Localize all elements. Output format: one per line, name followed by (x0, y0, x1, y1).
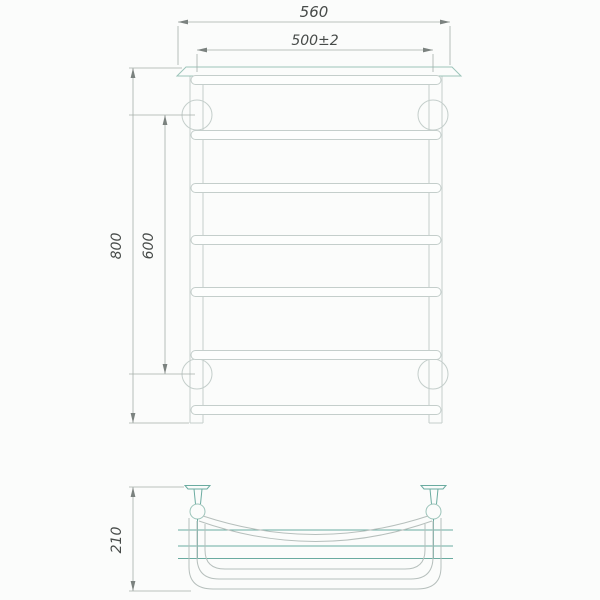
rail-bar-5 (191, 288, 441, 297)
rail-bar-4 (191, 236, 441, 245)
mount-collar-top-right (418, 100, 448, 130)
dim-label-bracket-spacing: 600 (141, 233, 157, 260)
dim-label-rail-width: 500±2 (291, 33, 338, 49)
dim-500-lines (197, 50, 433, 72)
rail-bar-7 (191, 406, 441, 415)
dim-600-arrow-bottom (163, 364, 168, 374)
curved-bar-lower (199, 521, 432, 542)
towel-rail-technical-drawing: 560 500±2 800 600 (0, 0, 600, 600)
dim-label-top-width: 560 (300, 3, 329, 21)
dim-800-lines (129, 68, 189, 423)
bottom-view (178, 486, 453, 590)
bracket-collar-left (190, 504, 205, 519)
dim-label-depth: 210 (109, 527, 125, 554)
dimension-depth: 210 (109, 487, 191, 591)
drawing-canvas: 560 500±2 800 600 (0, 0, 600, 600)
left-post (190, 76, 203, 423)
tube-outline-outer (189, 518, 441, 589)
bracket-flange-right (421, 486, 446, 490)
mount-collar-bottom-right (418, 359, 448, 389)
dim-210-arrow-top (131, 487, 136, 497)
dim-800-arrow-bottom (131, 413, 136, 423)
bracket-stem-right (430, 489, 438, 504)
top-shelf (177, 67, 461, 76)
dim-800-arrow-top (131, 68, 136, 78)
dim-600-arrow-top (163, 115, 168, 125)
dim-500-arrow-left (197, 48, 207, 53)
dim-500-arrow-right (423, 48, 433, 53)
rail-bar-3 (191, 184, 441, 193)
dim-210-lines (129, 487, 191, 591)
dim-560-arrow-right (440, 20, 450, 25)
dim-210-arrow-bottom (131, 581, 136, 591)
bracket-stem-left (194, 489, 202, 504)
bracket-flange-left (185, 486, 210, 490)
dim-560-arrow-left (178, 20, 188, 25)
dimension-bracket-spacing: 600 (129, 115, 195, 374)
dimension-rail-width: 500±2 (197, 33, 433, 72)
rail-bar-2 (191, 131, 441, 140)
dim-label-total-height: 800 (109, 233, 125, 260)
rail-bar-6 (191, 351, 441, 360)
rail-bar-1 (191, 76, 441, 85)
bracket-collar-right (426, 504, 441, 519)
front-view (177, 67, 461, 423)
dim-600-lines (129, 115, 195, 374)
